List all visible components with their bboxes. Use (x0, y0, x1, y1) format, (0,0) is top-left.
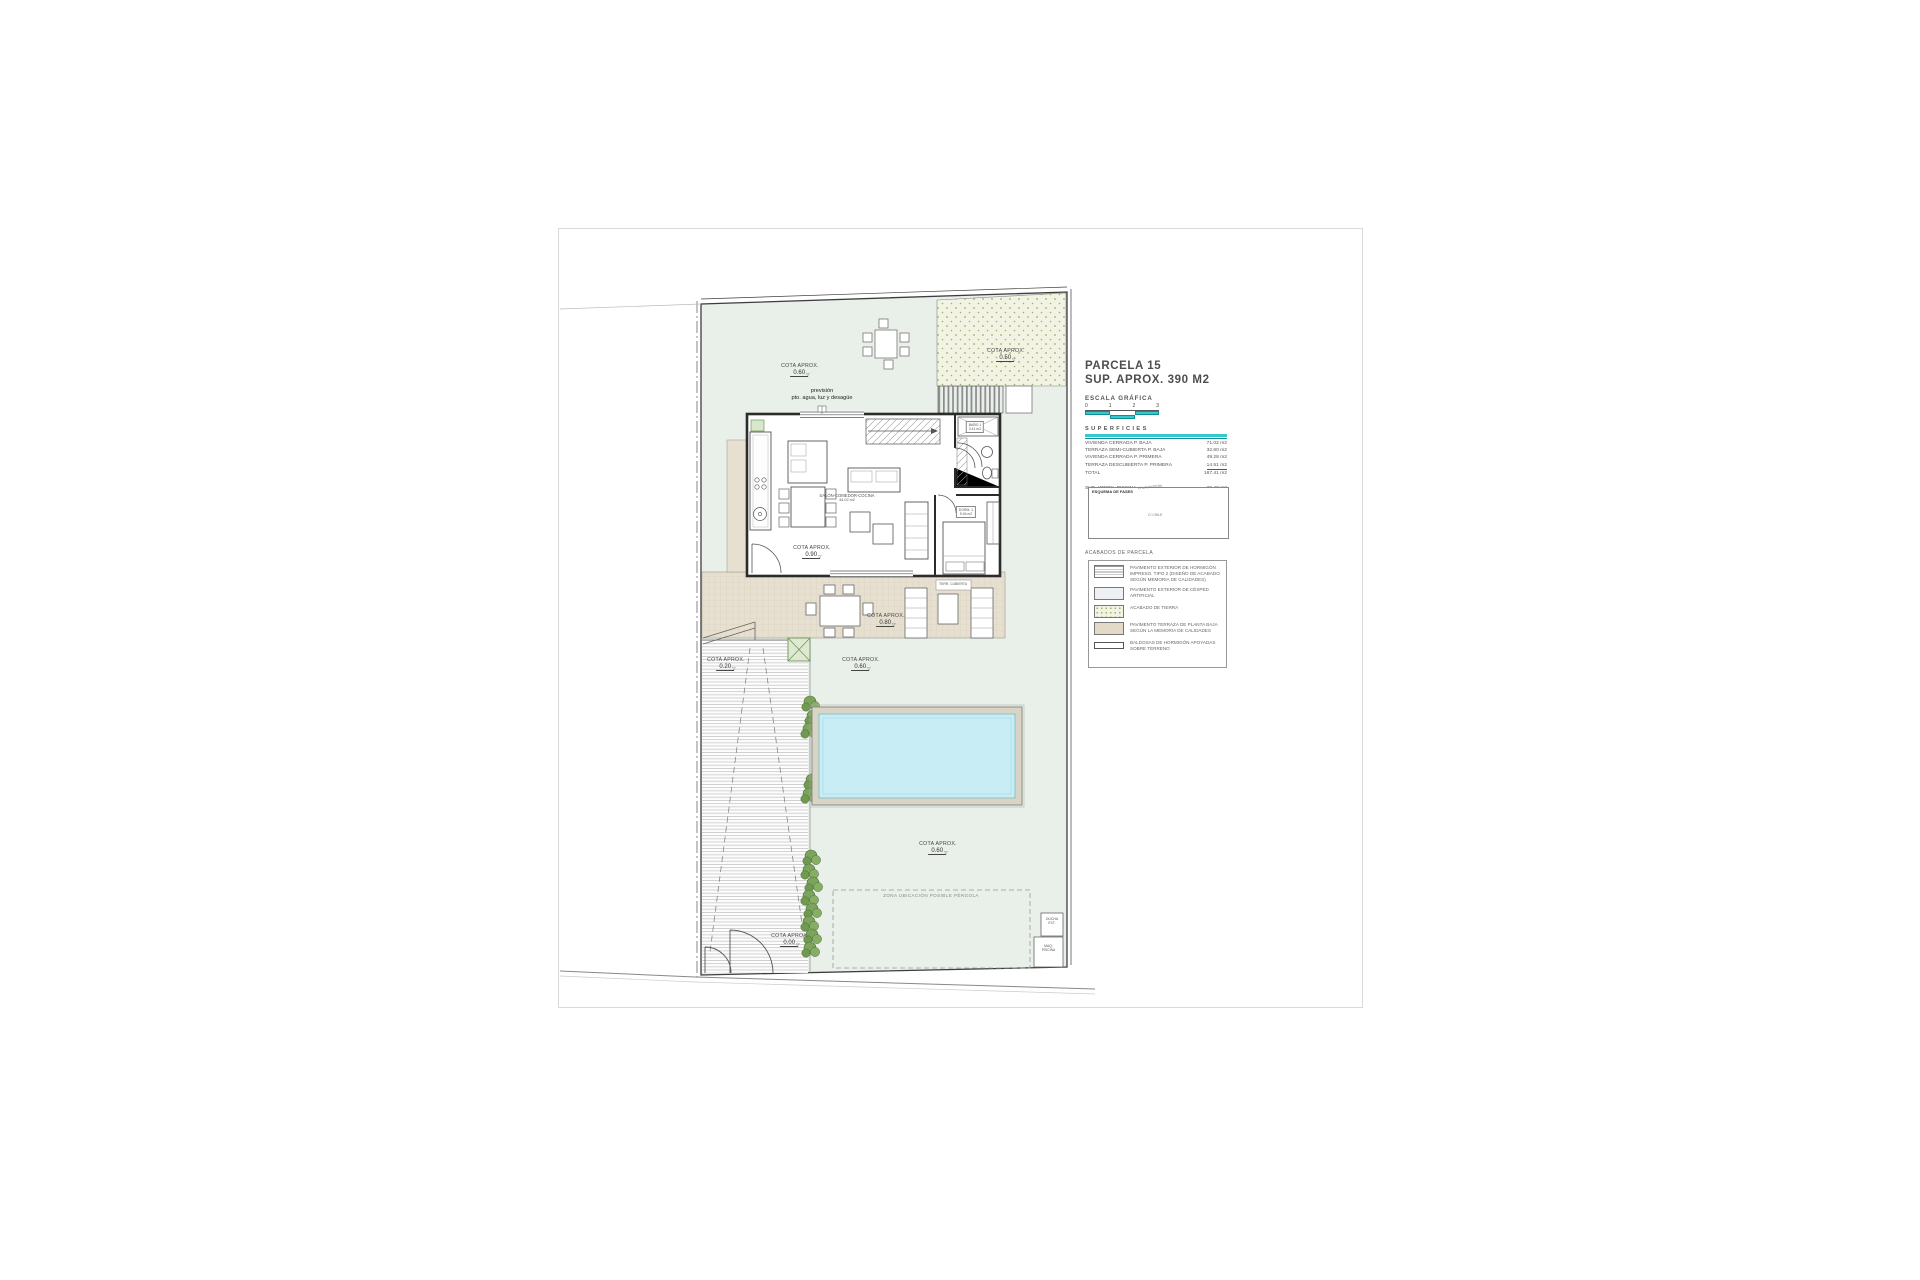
table-row: TERRAZA DESCUBIERTA P. PRIMERA14.51 m2 (1085, 463, 1227, 470)
legend-swatch-terraza-planta-baja (1094, 622, 1124, 635)
legend-item: PAVIMENTO EXTERIOR DE HORMIGÓN IMPRESO. … (1094, 565, 1221, 583)
plan-drawing (0, 0, 1920, 1280)
prevision-label: previsión pto. agua, luz y desagüe (792, 388, 853, 402)
scale-tick: 2 (1132, 403, 1135, 409)
legend-item: ACABADO DE TIERRA (1094, 605, 1221, 618)
bano-label: BAÑO 1 3.41 m2 (966, 421, 984, 433)
salon-label: SALÓN-COMEDOR-COCINA 44.02 m2 (819, 493, 874, 503)
title-block: PARCELA 15 SUP. APROX. 390 M2 (1085, 359, 1210, 388)
level-marker-icon: ▽ (732, 666, 735, 671)
terraza-cubierta-label: TERR. CUBIERTA (939, 582, 967, 586)
level-marker-icon: ▽ (944, 850, 947, 855)
cota-terrace: COTA APROX. 0.80▽ (867, 613, 905, 627)
level-marker-icon: ▽ (1012, 357, 1015, 362)
cota-tierra: COTA APROX. 0.50▽ (987, 348, 1025, 362)
tierra-zone (937, 293, 1066, 386)
minimap-title: ESQUEMA DE FASES (1092, 489, 1133, 494)
house-floorplan (747, 406, 1000, 577)
table-row: VIVIENDA CERRADA P. BAJA71.02 m2 (1085, 441, 1227, 447)
street-lines (560, 971, 1095, 994)
dorm-label: DORM. 1 9.04 m2 (956, 506, 976, 518)
maq-piscina-label: MAQ. PISCINA (1042, 944, 1056, 953)
level-marker-icon: ▽ (796, 942, 799, 947)
ducha-label: DUCHA EXT. (1046, 917, 1058, 926)
driveway (702, 622, 808, 973)
graphic-scale-bar: 0 1 2 3 (1085, 403, 1159, 420)
parcel-subtitle: SUP. APROX. 390 M2 (1085, 373, 1210, 387)
scale-tick: 3 (1156, 403, 1159, 409)
cota-house: COTA APROX. 0.90▽ (793, 545, 831, 559)
legend-item: PAVIMENTO TERRAZA DE PLANTA BAJA SEGÚN L… (1094, 622, 1221, 635)
cota-street: COTA APROX. 0.00▽ (771, 933, 809, 947)
table-row: VIVIENDA CERRADA P. PRIMERA49.28 m2 (1085, 455, 1227, 461)
scale-tick: 1 (1109, 403, 1112, 409)
parcel-title: PARCELA 15 (1085, 359, 1210, 373)
superficies-heading: SUPERFICIES (1085, 426, 1227, 432)
legend-item: PAVIMENTO EXTERIOR DE CÉSPED ARTIFICIAL (1094, 587, 1221, 600)
legend-heading: ACABADOS DE PARCELA (1085, 550, 1153, 556)
level-marker-icon: ▽ (892, 622, 895, 627)
legend-swatch-tierra (1094, 605, 1124, 618)
cota-top-garden: COTA APROX. 0.60▽ (781, 363, 819, 377)
superficies-table: SUPERFICIES VIVIENDA CERRADA P. BAJA71.0… (1085, 426, 1227, 492)
table-row: TERRAZA SEMI-CUBIERTA P. BAJA32.60 m2 (1085, 448, 1227, 454)
legend-swatch-hormigon-impreso (1094, 565, 1124, 578)
legend-swatch-baldosas (1094, 642, 1124, 649)
cota-driveway: COTA APROX. 0.20▽ (707, 657, 745, 671)
minimap-street-bottom: C/ CHILE (1148, 513, 1162, 517)
legend-item: BALDOSAS DE HORMIGÓN APOYADAS SOBRE TERR… (1094, 640, 1221, 652)
scale-tick: 0 (1085, 403, 1088, 409)
level-marker-icon: ▽ (867, 666, 870, 671)
slat-deck (938, 386, 1032, 413)
legend-swatch-cesped-artificial (1094, 587, 1124, 600)
pool (810, 705, 1024, 807)
level-marker-icon: ▽ (806, 372, 809, 377)
level-marker-icon: ▽ (818, 554, 821, 559)
cota-mid-garden: COTA APROX. 0.60▽ (842, 657, 880, 671)
site-plan-sheet: previsión pto. agua, luz y desagüe COTA … (0, 0, 1920, 1280)
legend: PAVIMENTO EXTERIOR DE HORMIGÓN IMPRESO. … (1088, 560, 1227, 668)
table-row-total: TOTAL167.41 m2 (1085, 471, 1227, 477)
cota-lower-garden: COTA APROX. 0.60▽ (919, 841, 957, 855)
scale-label: ESCALA GRÁFICA (1085, 395, 1153, 402)
pergola-zone-label: ZONA UBICACIÓN POSIBLE PÉRGOLA (883, 893, 979, 898)
